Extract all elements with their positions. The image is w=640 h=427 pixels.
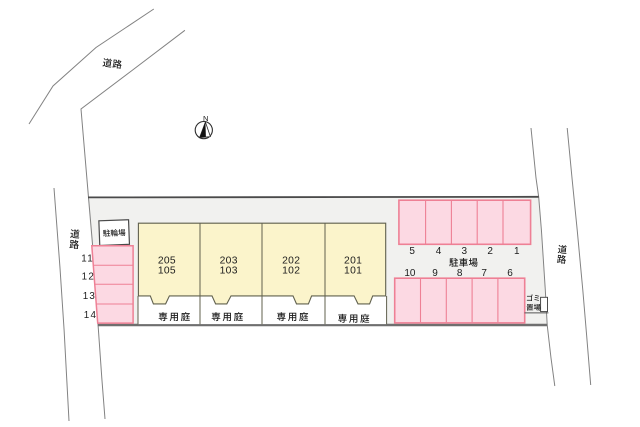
svg-text:10: 10 xyxy=(404,268,416,279)
svg-text:5: 5 xyxy=(409,246,415,257)
svg-text:6: 6 xyxy=(507,268,513,279)
svg-text:7: 7 xyxy=(481,268,487,279)
svg-text:14: 14 xyxy=(84,310,98,321)
svg-text:3: 3 xyxy=(462,246,468,257)
svg-text:13: 13 xyxy=(83,291,97,302)
svg-text:2: 2 xyxy=(487,246,493,257)
svg-text:12: 12 xyxy=(82,271,96,282)
svg-text:1: 1 xyxy=(514,246,520,257)
svg-text:N: N xyxy=(203,114,208,123)
svg-text:4: 4 xyxy=(436,246,442,257)
svg-text:103: 103 xyxy=(220,266,238,277)
svg-text:102: 102 xyxy=(282,266,300,277)
svg-text:101: 101 xyxy=(344,266,362,277)
svg-text:11: 11 xyxy=(81,254,94,265)
svg-text:8: 8 xyxy=(457,268,463,279)
svg-text:105: 105 xyxy=(158,266,176,277)
svg-text:9: 9 xyxy=(432,268,438,279)
